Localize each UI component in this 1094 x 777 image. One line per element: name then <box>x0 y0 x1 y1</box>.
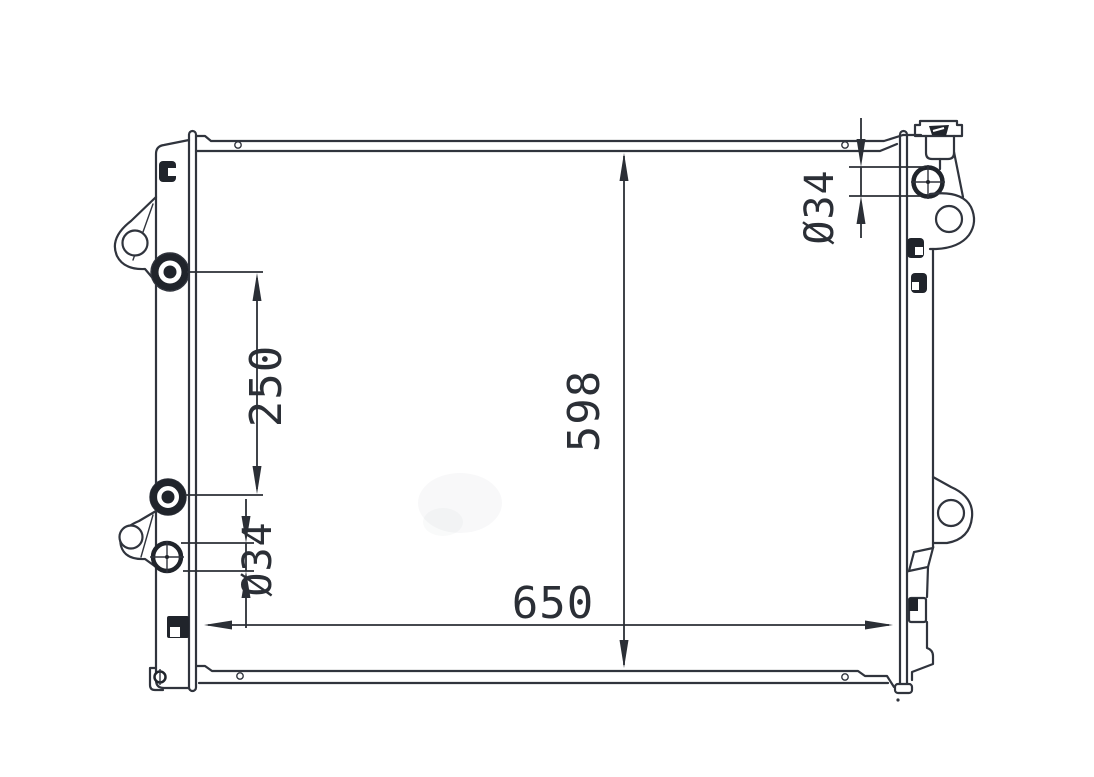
dim-label-port-spacing: 250 <box>241 345 292 427</box>
right-upper-mounting-bracket <box>930 152 974 249</box>
dim-label-right-port-diameter: Ø34 <box>797 169 843 244</box>
right-tank-clip-2 <box>911 273 927 293</box>
right-tank-clip-1 <box>907 238 924 258</box>
dim-label-core-width: 650 <box>512 578 594 629</box>
core-side-plate-right <box>900 131 907 688</box>
top-frame-rivet-left <box>235 142 241 148</box>
bracket-hole <box>123 231 148 256</box>
cap-body <box>926 136 954 159</box>
core-side-plate-left <box>189 131 196 691</box>
bottom-frame-rivet-right <box>842 674 848 680</box>
drawing-canvas: 250 Ø34 598 650 Ø34 <box>0 0 1094 777</box>
radiator-technical-drawing: 250 Ø34 598 650 Ø34 <box>0 0 1094 777</box>
bracket-tab <box>909 548 933 571</box>
left-lower-mounting-bracket <box>120 511 157 567</box>
right-tank-lower-clip <box>909 598 926 622</box>
right-lower-mounting-bracket <box>909 477 972 571</box>
dimension-core-width: 650 <box>204 578 893 630</box>
left-mid-port <box>150 479 186 515</box>
bottom-frame-rivet-left <box>237 673 243 679</box>
left-upper-port <box>151 253 189 291</box>
bracket-hole <box>938 500 964 526</box>
bracket-hole <box>936 206 962 232</box>
top-frame-rivet-right <box>842 142 848 148</box>
core-top-frame <box>196 135 903 151</box>
dim-label-core-height: 598 <box>559 370 610 452</box>
left-tank-lower-clip <box>167 616 189 638</box>
dim-label-left-port-diameter: Ø34 <box>235 521 281 596</box>
bracket-hole <box>120 526 143 549</box>
left-tank <box>115 140 189 690</box>
dimension-port-spacing: 250 <box>185 272 292 495</box>
left-upper-mounting-bracket <box>115 197 156 282</box>
core-bottom-frame <box>197 666 894 687</box>
left-tank-upper-clip <box>159 161 176 182</box>
watermark <box>418 473 502 536</box>
dimension-right-port-diameter: Ø34 <box>797 118 925 245</box>
right-tank-foot <box>895 684 912 702</box>
cap-vent-glyph <box>929 125 949 136</box>
